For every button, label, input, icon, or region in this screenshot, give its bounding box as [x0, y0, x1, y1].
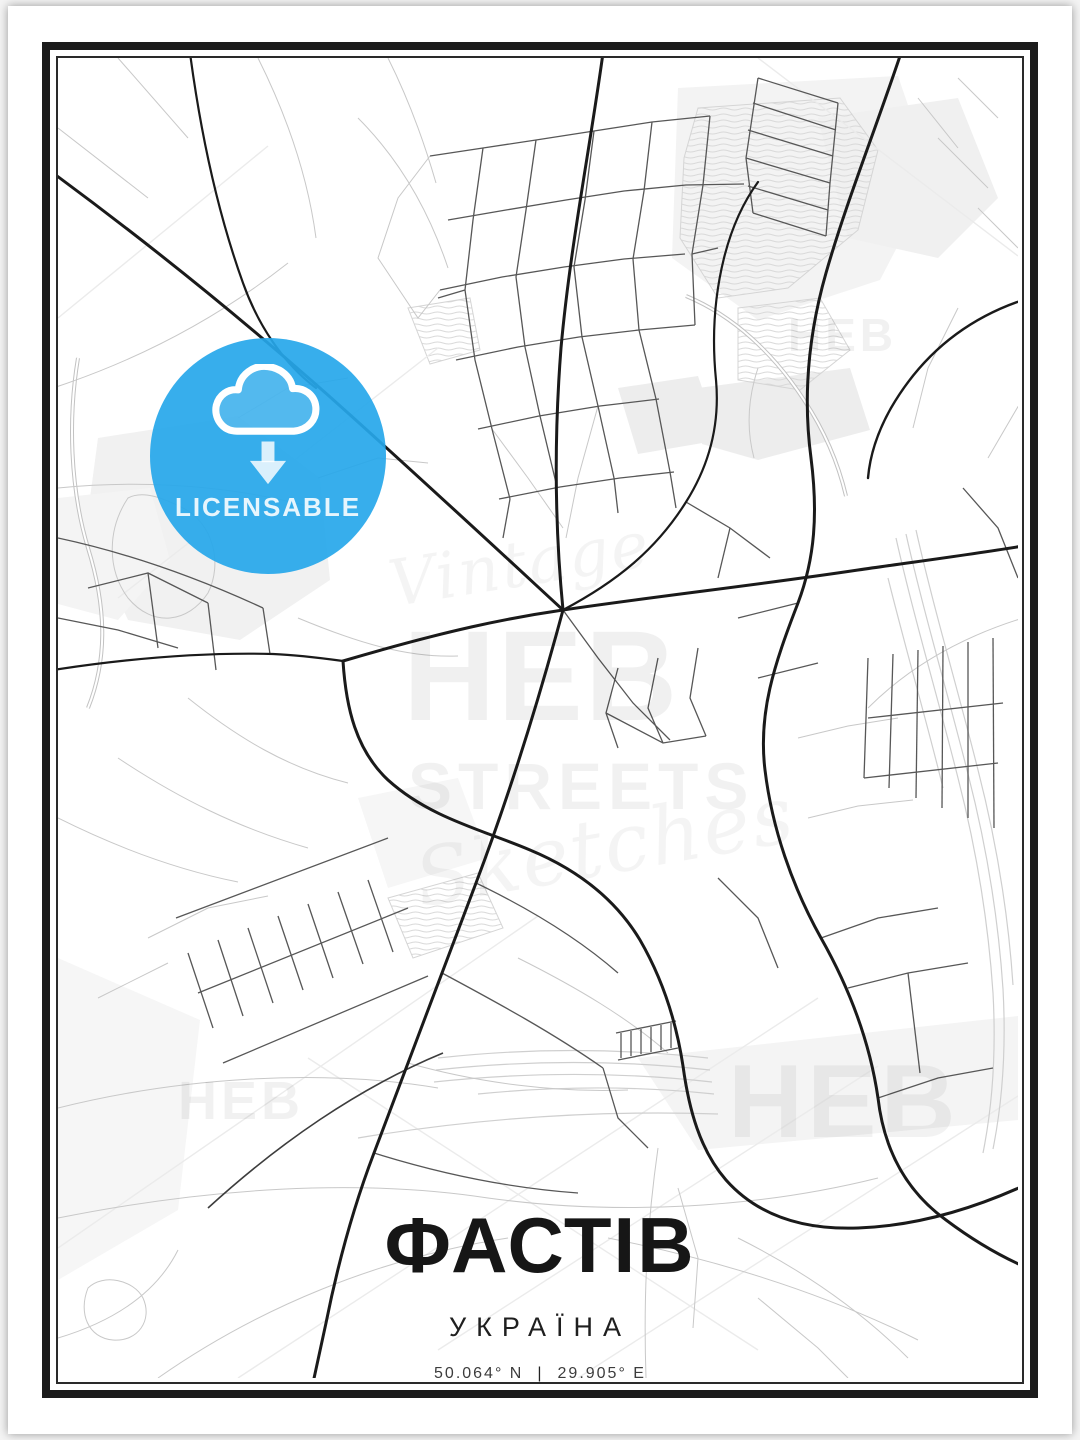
coordinates-separator: |: [537, 1365, 543, 1382]
licensable-badge[interactable]: LICENSABLE: [150, 338, 386, 574]
map-area: Vintage HEB STREETS Sketches HEB HEB HEB…: [58, 58, 1022, 1382]
latitude-value: 50.064° N: [434, 1365, 523, 1382]
terrain-areas: [58, 76, 1018, 1280]
cloud-download-icon: [203, 364, 333, 488]
longitude-value: 29.905° E: [558, 1365, 646, 1382]
city-map-svg: [58, 58, 1018, 1378]
poster-frame-inner: Vintage HEB STREETS Sketches HEB HEB HEB…: [56, 56, 1024, 1384]
map-poster: Vintage HEB STREETS Sketches HEB HEB HEB…: [8, 6, 1072, 1434]
page-background: Vintage HEB STREETS Sketches HEB HEB HEB…: [0, 0, 1080, 1440]
badge-label: LICENSABLE: [175, 492, 361, 523]
coordinates: 50.064° N|29.905° E: [58, 1365, 1022, 1382]
poster-frame-outer: Vintage HEB STREETS Sketches HEB HEB HEB…: [42, 42, 1038, 1398]
city-title: ФАСТІВ: [58, 1206, 1022, 1284]
country-subtitle: УКРАЇНА: [58, 1312, 1022, 1343]
title-block: ФАСТІВ УКРАЇНА 50.064° N|29.905° E: [58, 1206, 1022, 1382]
download-arrow-icon: [250, 442, 286, 485]
